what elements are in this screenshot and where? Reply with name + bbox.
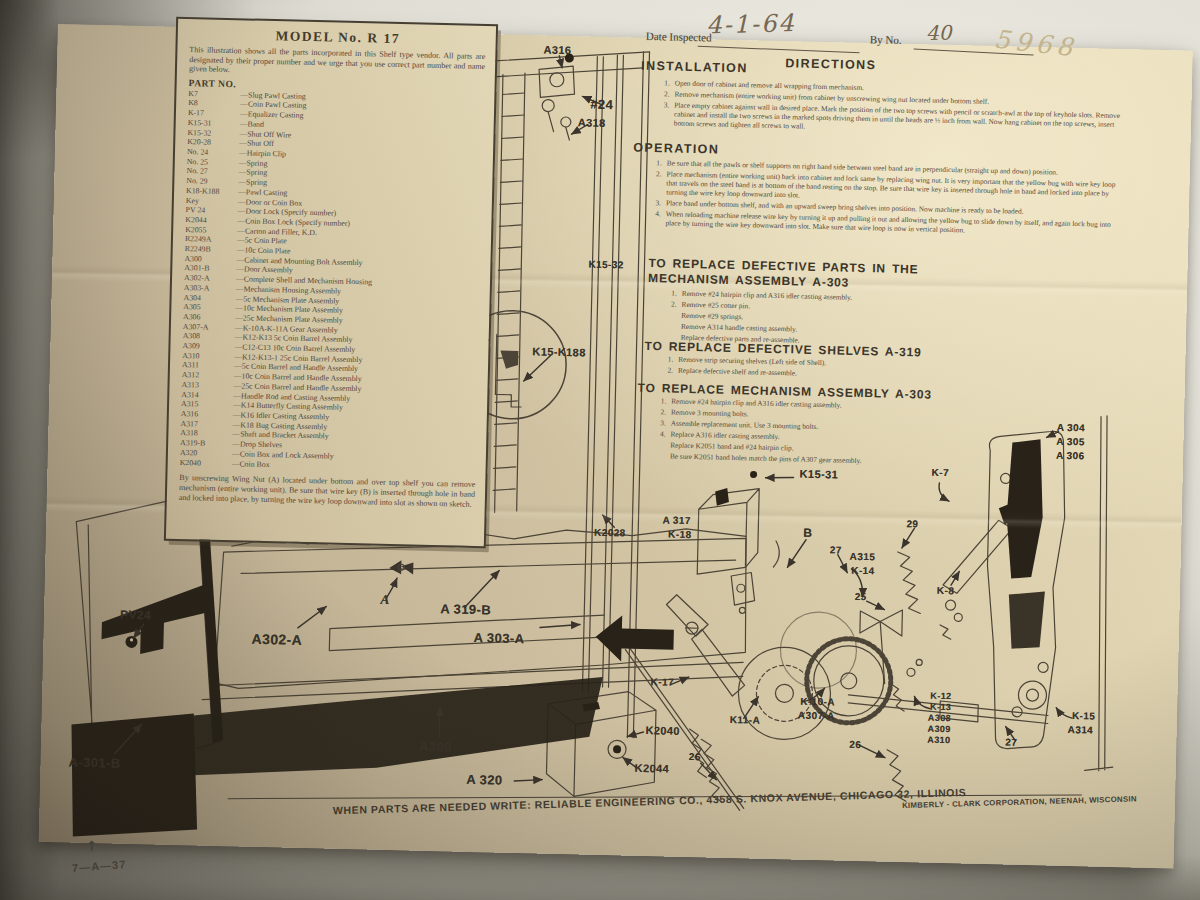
panel-footnote: By unscrewing Wing Nut (A) located under… bbox=[179, 473, 476, 510]
parts-list: K7—Slug Pawl CastingK8—Coin Pawl Casting… bbox=[180, 89, 485, 474]
step-number: 1. bbox=[657, 78, 670, 87]
diagram-label: A bbox=[380, 592, 389, 608]
diagram-label: A 303-A bbox=[473, 630, 524, 646]
part-number: K2040 bbox=[180, 457, 232, 468]
parts-list-panel: MODEL No. R 17 This illustration shows a… bbox=[164, 17, 498, 548]
replace-parts-header: TO REPLACE DEFECTIVE PARTS IN THE MECHAN… bbox=[648, 256, 919, 292]
diagram-label: K-14 bbox=[851, 565, 875, 577]
diagram-label: 29 bbox=[906, 518, 918, 529]
diagram-label: PV24 bbox=[120, 608, 151, 623]
diagram-label: 27 bbox=[1005, 737, 1017, 748]
diagram-label: A 320 bbox=[466, 772, 503, 788]
diagram-label: A309 bbox=[928, 724, 951, 735]
diagram-label: K15-32 bbox=[588, 259, 623, 271]
diagram-label: K15-31 bbox=[799, 468, 838, 481]
diagram-label: A 319-B bbox=[440, 601, 491, 617]
step-number: 1. bbox=[649, 158, 662, 167]
diagram-label: A 304 bbox=[1057, 422, 1086, 434]
diagram-label: K-17 bbox=[651, 676, 675, 688]
diagram-label: A310 bbox=[927, 735, 950, 746]
diagram-label: A318 bbox=[578, 116, 606, 129]
diagram-label: K2044 bbox=[634, 762, 669, 775]
diagram-label: A307-A bbox=[798, 710, 835, 722]
step-number: 4. bbox=[647, 209, 660, 227]
step-number: 1. bbox=[664, 288, 677, 297]
diagram-label: K15-K188 bbox=[532, 345, 586, 358]
diagram-label: K2040 bbox=[645, 724, 680, 737]
diagram-label: A 305 bbox=[1056, 436, 1085, 448]
installation-header: INSTALLATION bbox=[641, 60, 748, 76]
diagram-label: K-12 bbox=[930, 691, 951, 701]
step-number bbox=[652, 440, 665, 449]
diagram-label: A 317 bbox=[662, 514, 691, 526]
diagram-label: A314 bbox=[1068, 724, 1094, 736]
directions-header: DIRECTIONS bbox=[785, 57, 876, 73]
diagram-label: 25 bbox=[855, 591, 867, 602]
diagram-label: K-15 bbox=[1072, 710, 1096, 722]
step-number bbox=[663, 310, 676, 319]
panel-intro-text: This illustration shows all the parts in… bbox=[189, 45, 486, 81]
step-number: 3. bbox=[656, 100, 670, 127]
diagram-label: A-301-B bbox=[68, 754, 120, 770]
diagram-label: 26 bbox=[689, 751, 701, 762]
step-number: 2. bbox=[648, 169, 662, 196]
date-inspected-value: 4-1-64 bbox=[706, 9, 796, 40]
diagram-label: K-13 bbox=[930, 702, 951, 712]
step-number: 4. bbox=[652, 429, 665, 438]
parts-sheet: MODEL No. R 17 This illustration shows a… bbox=[39, 24, 1193, 869]
corner-arrow-icon: ↑ bbox=[86, 838, 98, 854]
diagram-label: 26 bbox=[849, 739, 861, 750]
replace-mechanism-steps: 1.Remove #24 hairpin clip and A316 idler… bbox=[652, 396, 983, 470]
diagram-label: 27 bbox=[830, 544, 842, 555]
step-number: 1. bbox=[660, 354, 673, 363]
step-number: 2. bbox=[660, 365, 673, 374]
diagram-label: K11-A bbox=[730, 714, 761, 726]
step-number: 3. bbox=[648, 198, 661, 207]
operation-header: OPERATION bbox=[633, 142, 719, 158]
step-number: 2. bbox=[656, 89, 669, 98]
diagram-label: A308 bbox=[928, 713, 951, 724]
diagram-label: A315 bbox=[850, 551, 876, 563]
diagram-label: K2028 bbox=[594, 527, 626, 539]
step-number: 2. bbox=[663, 299, 676, 308]
photo-of-parts-sheet: MODEL No. R 17 This illustration shows a… bbox=[0, 0, 1200, 900]
diagram-label: K-7 bbox=[932, 467, 950, 478]
step-number: 3. bbox=[653, 418, 666, 427]
diagram-label: K-8 bbox=[937, 585, 955, 596]
step-number bbox=[663, 321, 676, 330]
diagram-label: K-10-A bbox=[800, 696, 835, 708]
by-no-value: 40 bbox=[926, 21, 952, 45]
diagram-label: A 306 bbox=[1056, 450, 1085, 462]
diagram-label: A302-A bbox=[251, 631, 302, 648]
diagram-label: B bbox=[803, 526, 812, 540]
step-number: 1. bbox=[653, 396, 666, 405]
diagram-label: A300 bbox=[419, 739, 452, 755]
diagram-label: K-18 bbox=[668, 529, 692, 541]
step-number: 2. bbox=[653, 407, 666, 416]
step-number bbox=[652, 451, 665, 460]
date-inspected-label: Date Inspected bbox=[646, 30, 712, 44]
diagram-label: #24 bbox=[590, 97, 613, 113]
diagram-label: A316 bbox=[543, 43, 571, 56]
operation-steps: 1.Be sure that all the pawls or shelf su… bbox=[647, 158, 1125, 240]
by-no-label: By No. bbox=[870, 33, 902, 46]
